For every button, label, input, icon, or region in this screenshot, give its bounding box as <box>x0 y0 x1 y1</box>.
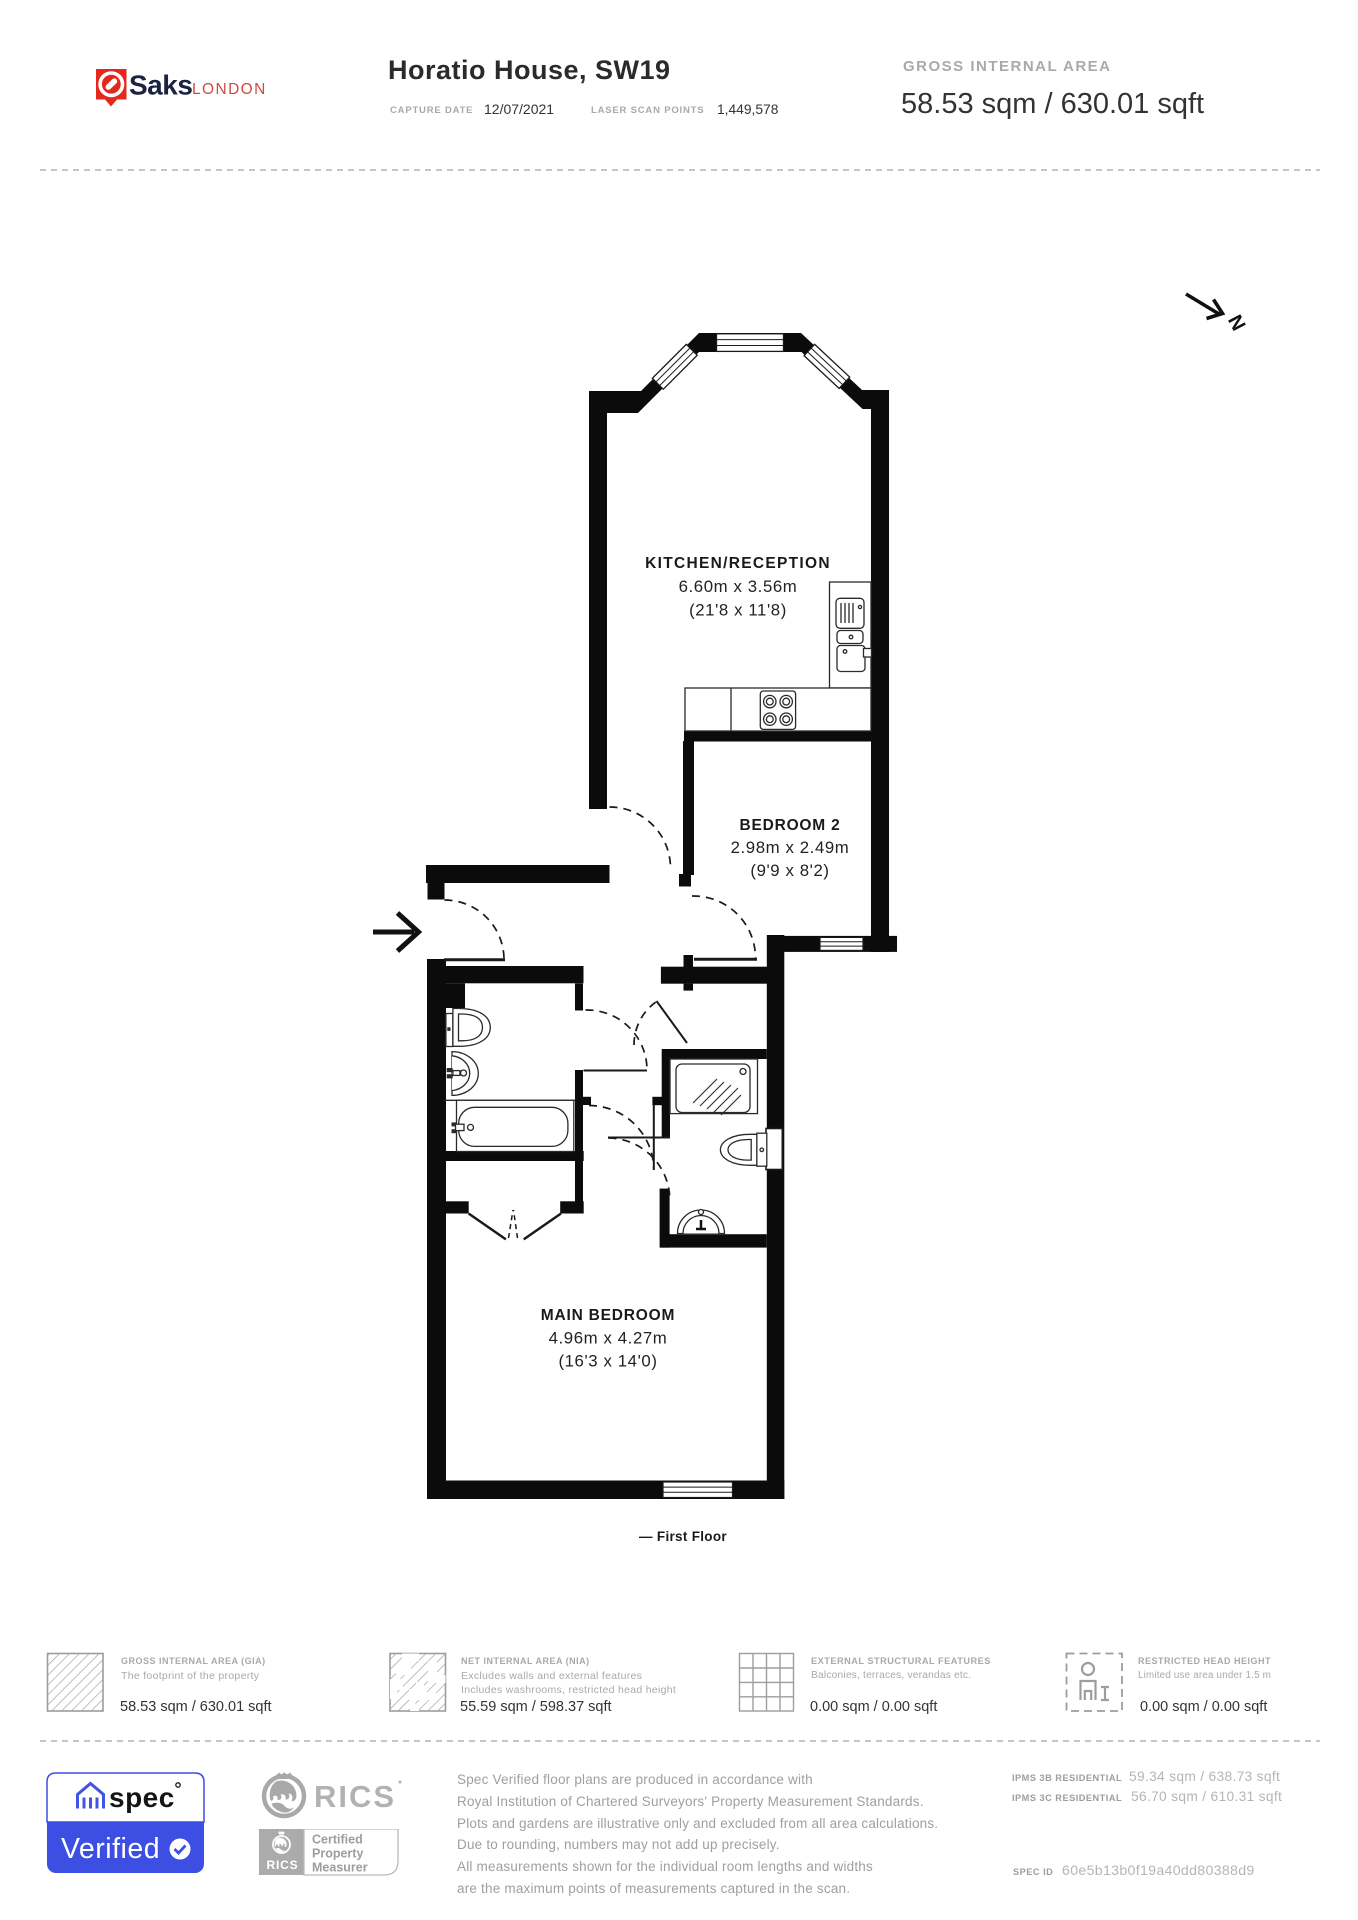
svg-text:RICS: RICS <box>267 1858 299 1872</box>
svg-text:RICS: RICS <box>314 1779 396 1814</box>
svg-text:Property: Property <box>312 1847 363 1861</box>
svg-text:Measurer: Measurer <box>312 1861 368 1875</box>
svg-text:spec: spec <box>109 1782 175 1813</box>
svg-text:Verified: Verified <box>61 1833 160 1865</box>
svg-text:Certified: Certified <box>312 1833 363 1847</box>
